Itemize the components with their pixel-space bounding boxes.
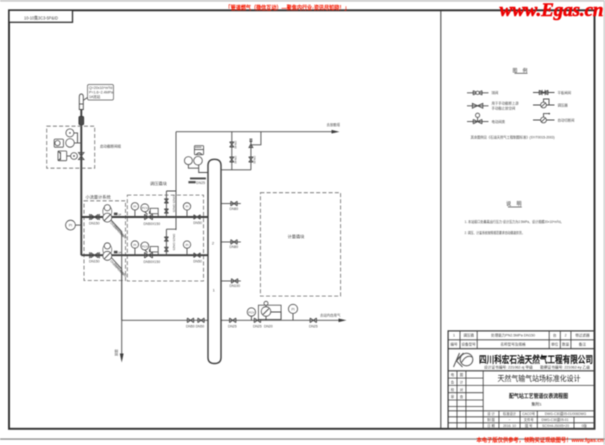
svg-text:图 号: 图 号 [525,423,533,428]
svg-text:单位: 单位 [551,341,559,346]
svg-text:球阀: 球阀 [492,90,499,95]
svg-text:标准设计: 标准设计 [503,411,517,416]
svg-text:0版: 0版 [582,423,588,428]
svg-text:DN25: DN25 [253,324,262,328]
svg-text:~: ~ [509,418,511,422]
svg-text:图: 图 [460,373,464,377]
svg-text:Q=20x10⁴m³/d: Q=20x10⁴m³/d [89,86,112,90]
svg-text:说 明: 说 明 [506,201,523,208]
svg-text:日 期: 日 期 [487,423,495,428]
svg-text:调压撬块: 调压撬块 [150,180,168,187]
svg-text:调压撬: 调压撬 [463,333,474,338]
svg-text:2016. 10: 2016. 10 [503,424,516,428]
svg-text:DN25: DN25 [196,181,205,185]
svg-text:「管道燃气（微信互动）—聚焦内行业·资讯尽知晓！」: 「管道燃气（微信互动）—聚焦内行业·资讯尽知晓！」 [226,4,350,12]
svg-text:编号: 编号 [450,341,458,346]
svg-text:设计证书编号: 221062-sj 甲级 勘察证书编号:: 设计证书编号: 221062-sj 甲级 勘察证书编号: 221062-ky 乙… [484,365,590,370]
svg-text:调压器: 调压器 [558,103,569,108]
svg-text:DN80: DN80 [230,207,239,211]
svg-text:DN25: DN25 [228,324,237,328]
svg-text:去放散塔: 去放散塔 [326,122,340,127]
svg-text:处理能力PN2.5MPa DN150: 处理能力PN2.5MPa DN150 [491,333,535,338]
svg-text:PCV: PCV [248,310,254,314]
svg-text:www.Egas.cn: www.Egas.cn [500,0,604,21]
svg-text:DWG-C30建05-01/006DWG: DWG-C30建05-01/006DWG [545,411,587,416]
svg-text:带过滤器: 带过滤器 [575,333,590,338]
svg-text:手动截止放空阀: 手动截止放空阀 [492,105,516,110]
svg-text:备注: 备注 [579,341,587,346]
svg-text:DN40: DN40 [234,141,238,149]
svg-text:集附1: 集附1 [531,400,542,406]
svg-text:DN50 DN50: DN50 DN50 [186,324,204,328]
svg-text:DN100: DN100 [230,284,241,288]
svg-text:DWG-C30建05-01: DWG-C30建05-01 [542,417,569,422]
svg-text:1#进站: 1#进站 [89,94,101,99]
svg-text:其余图例见《石油天然气工程制图标准》(SY/T0015-20: 其余图例见《石油天然气工程制图标准》(SY/T0015-2003) [471,134,555,139]
svg-text:SCXH4-JS005+20: SCXH4-JS005+20 [542,424,569,428]
svg-text:P=1.6~2.4MPa: P=1.6~2.4MPa [89,90,113,94]
svg-text:四川科宏石油天然气工程有限公司: 四川科宏石油天然气工程有限公司 [479,353,593,366]
svg-text:10-10集3C3-5P&ID: 10-10集3C3-5P&ID [24,14,59,21]
svg-text:本电子版仅供参考，领购买证现级图号！www.fgas.cn: 本电子版仅供参考，领购买证现级图号！www.fgas.cn [477,436,605,444]
svg-text:文件号: 文件号 [524,417,535,422]
svg-text:计量撬块: 计量撬块 [288,233,306,240]
svg-text:PI: PI [69,224,72,228]
svg-text:小流量计系统: 小流量计系统 [86,194,111,201]
svg-text:CACO号: CACO号 [522,411,536,416]
svg-text:数量: 数量 [562,341,570,346]
svg-text:DN25: DN25 [309,324,318,328]
svg-text:名称型号及规格: 名称型号及规格 [500,341,526,346]
svg-text:PI: PI [291,307,294,311]
svg-text:天然气输气站场标准化设计: 天然气输气站场标准化设计 [498,374,582,383]
svg-text:放散: 放散 [114,349,119,356]
svg-text:计: 计 [460,380,464,385]
svg-text:制 图: 制 图 [487,417,495,422]
svg-text:2: 2 [565,334,567,338]
svg-text:用于手动截断上游: 用于手动截断上游 [492,100,520,105]
svg-text:平板闸阀: 平板闸阀 [558,90,572,95]
svg-text:1: 1 [453,334,455,338]
svg-text:配气站工艺管道仪表流程图: 配气站工艺管道仪表流程图 [509,392,569,400]
svg-text:DN20: DN20 [264,324,273,328]
svg-text:对: 对 [460,387,464,392]
svg-text:电动阀类: 电动阀类 [492,119,506,124]
svg-text:DN20: DN20 [253,156,257,164]
svg-text:DN40: DN40 [234,156,238,164]
svg-text:2. 调压、计量系统按照规范要求自动撬装供货。: 2. 调压、计量系统按照规范要求自动撬装供货。 [465,230,525,235]
svg-text:去站内自用气: 去站内自用气 [320,313,341,318]
svg-text:设备型号: 设备型号 [461,341,476,346]
svg-text:图 例: 图 例 [513,67,530,74]
svg-text:自动切断阀: 自动切断阀 [558,118,576,123]
svg-text:启动截断阀组: 启动截断阀组 [100,143,121,148]
svg-text:1. 本站接口处最高运行压力·设计压力为2.5MPa、设计规: 1. 本站接口处最高运行压力·设计压力为2.5MPa、设计规模20×10⁴m³/… [465,219,564,224]
svg-text:查: 查 [460,394,464,399]
svg-text:设 计: 设 计 [487,411,495,416]
svg-text:DN80: DN80 [230,245,239,249]
svg-text:台: 台 [553,333,557,338]
